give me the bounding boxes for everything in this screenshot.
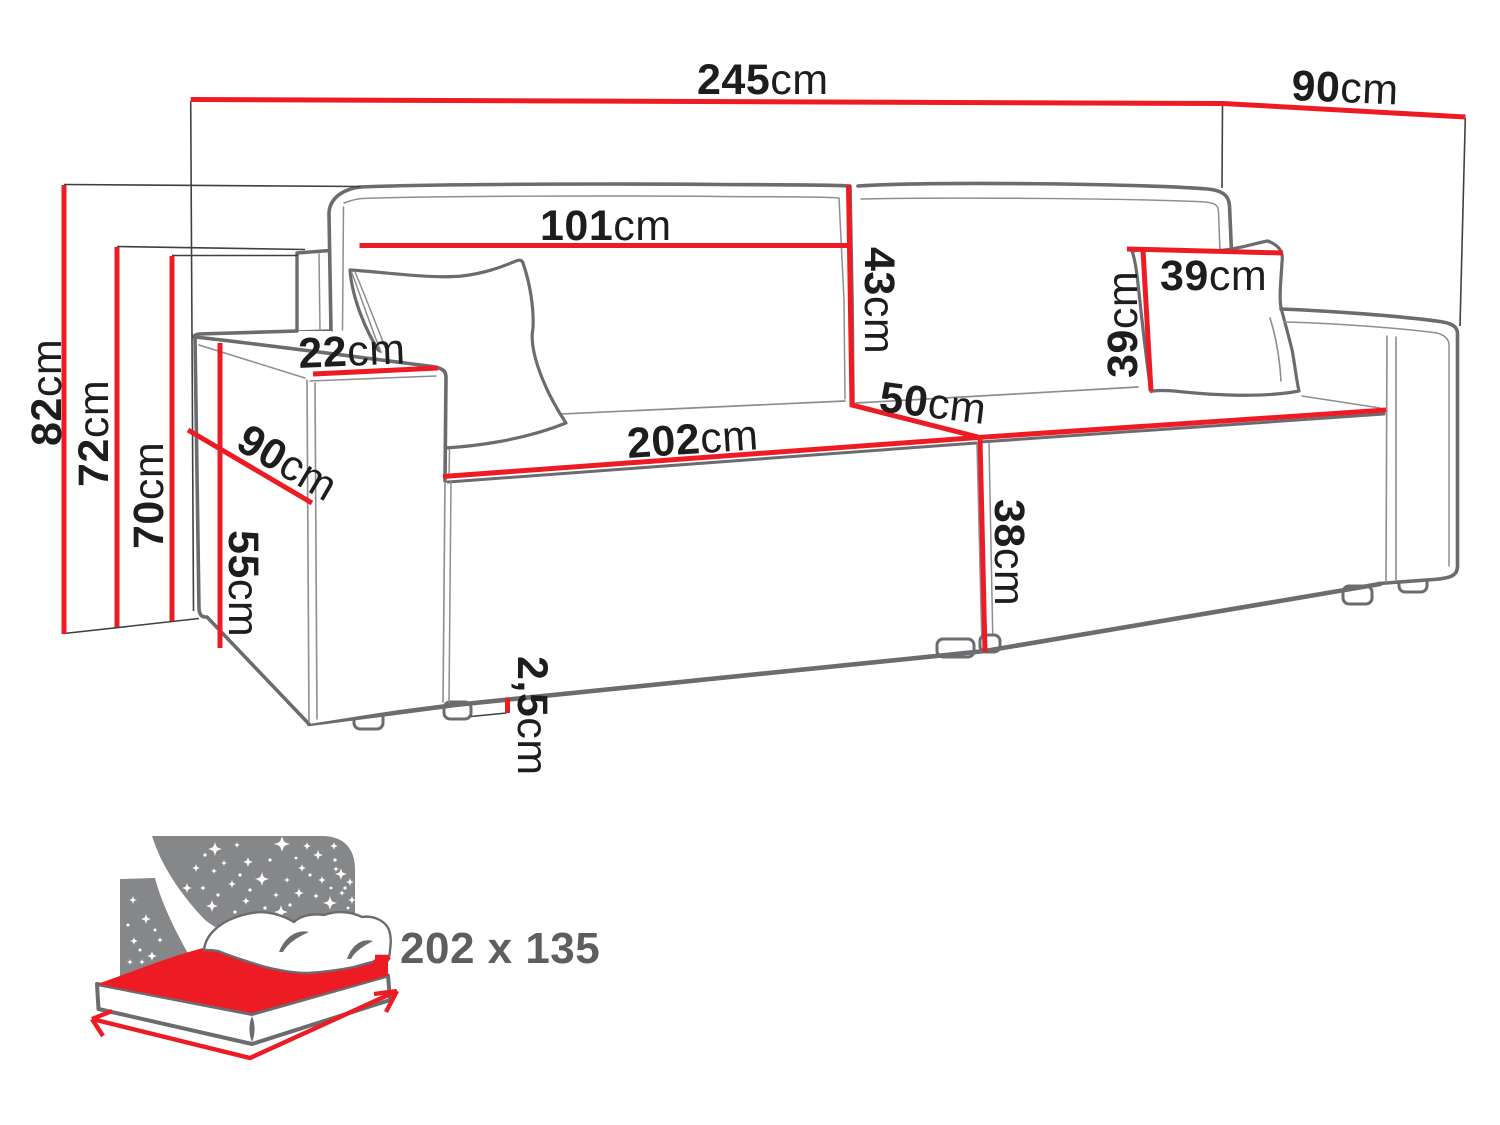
svg-text:202 x 135: 202 x 135 (400, 924, 600, 973)
svg-text:70cm: 70cm (125, 442, 173, 549)
svg-text:22cm: 22cm (297, 325, 406, 378)
svg-text:245cm: 245cm (697, 56, 829, 104)
svg-text:72cm: 72cm (70, 380, 118, 487)
svg-text:90cm: 90cm (1291, 62, 1400, 114)
svg-text:38cm: 38cm (985, 499, 1033, 606)
svg-text:202cm: 202cm (625, 411, 759, 468)
svg-text:43cm: 43cm (855, 247, 903, 354)
svg-text:82cm: 82cm (23, 339, 71, 446)
svg-text:39cm: 39cm (1099, 271, 1147, 378)
svg-text:55cm: 55cm (219, 530, 267, 637)
svg-text:101cm: 101cm (540, 202, 672, 250)
svg-text:2,5cm: 2,5cm (508, 656, 556, 776)
svg-text:39cm: 39cm (1160, 252, 1267, 300)
